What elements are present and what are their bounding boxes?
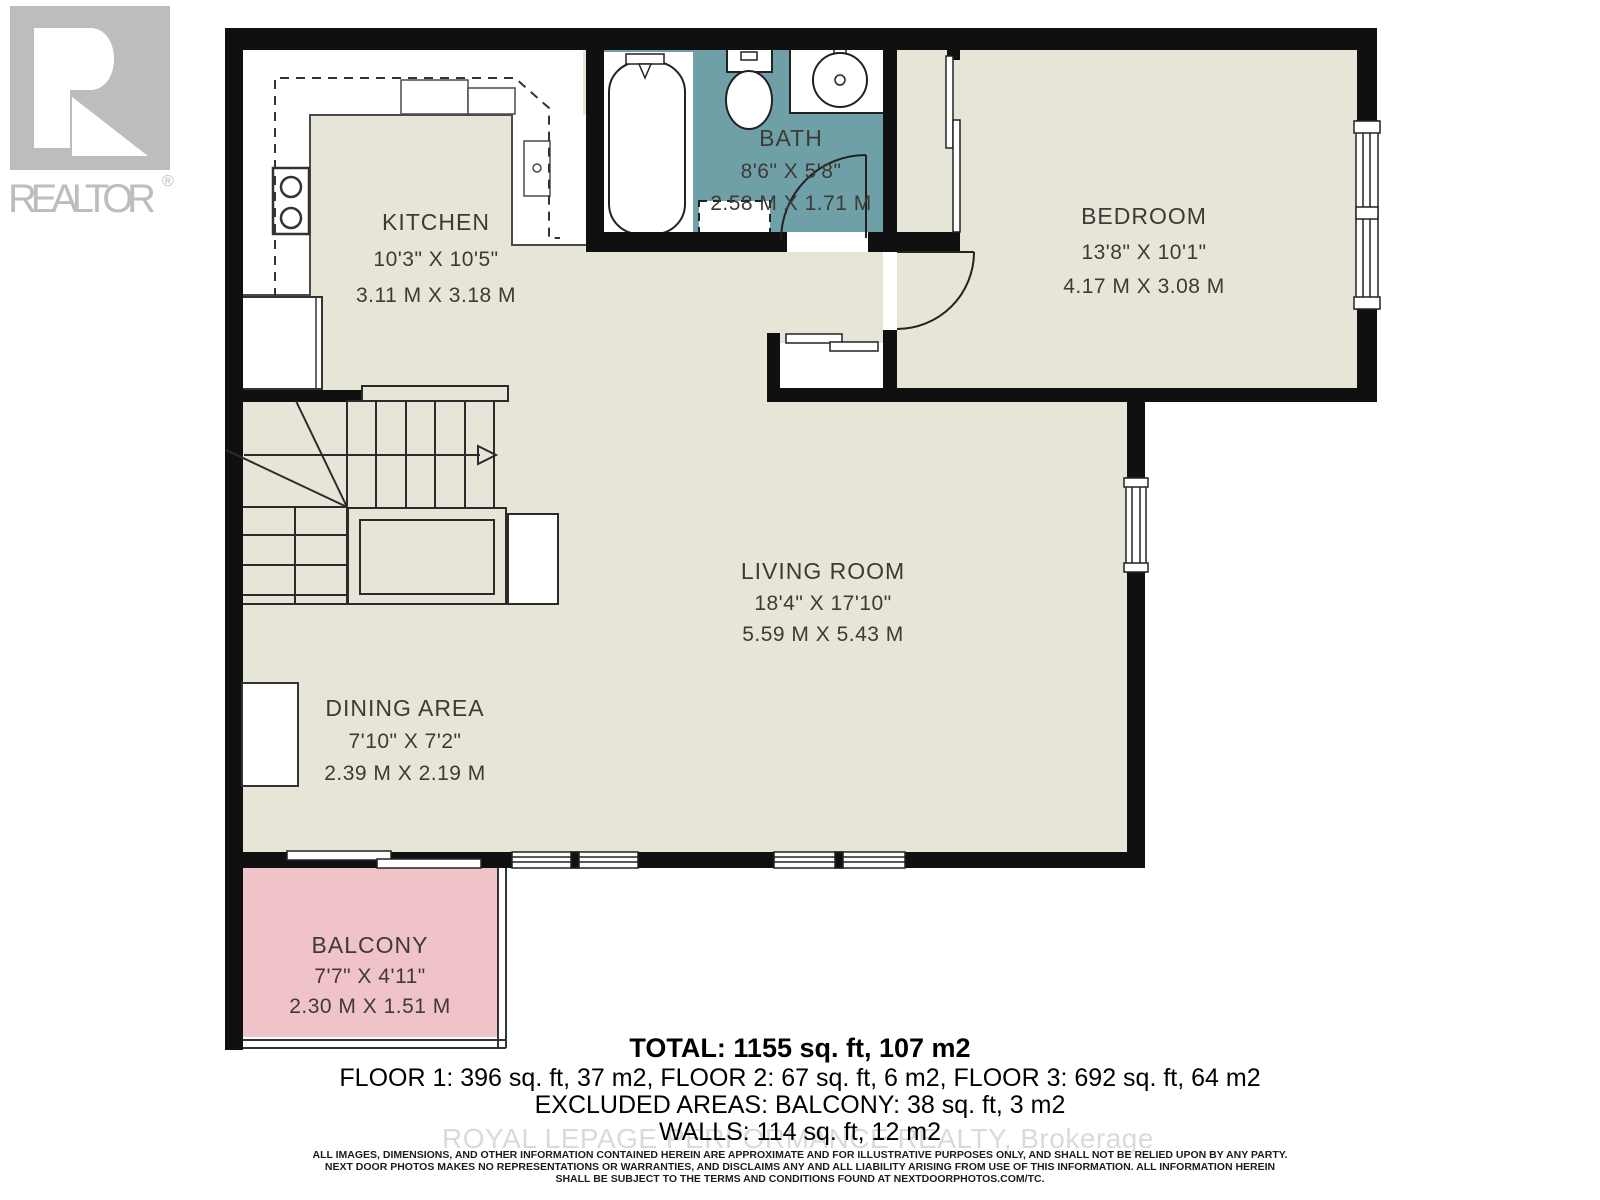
bedroom-metric: 4.17 M X 3.08 M [1063, 275, 1225, 298]
wall-bath-bottom-left [586, 232, 787, 252]
bathtub [609, 62, 685, 234]
bedroom-closet-slider-1 [946, 56, 953, 148]
realtor-logo-r-bowl [70, 28, 114, 90]
balcony-slider-panel-2 [377, 859, 481, 868]
bedroom-window-sill-bottom [1354, 297, 1380, 309]
bedroom-imperial: 13'8" X 10'1" [1081, 241, 1206, 264]
balcony-metric: 2.30 M X 1.51 M [289, 995, 451, 1018]
disclaimer: ALL IMAGES, DIMENSIONS, AND OTHER INFORM… [312, 1149, 1287, 1185]
living-room-label: LIVING ROOM 18'4" X 17'10" 5.59 M X 5.43… [741, 558, 905, 646]
living-window-sill-bottom [1124, 563, 1148, 572]
toilet-bowl [726, 71, 772, 129]
bath-imperial: 8'6" X 5'8" [741, 160, 842, 183]
wall-bath-bottom-right [868, 232, 960, 252]
bottom-window-2-mullion [835, 852, 843, 868]
balcony-slider-panel-1 [287, 851, 391, 860]
sink-basin [813, 53, 867, 107]
floor-plan-page: REALTOR ® [0, 0, 1600, 1200]
kitchen-imperial: 10'3" X 10'5" [373, 248, 498, 271]
realtor-logo: REALTOR ® [8, 6, 174, 221]
living-room-imperial: 18'4" X 17'10" [754, 592, 891, 615]
disclaimer-line-1: ALL IMAGES, DIMENSIONS, AND OTHER INFORM… [312, 1149, 1287, 1161]
kitchen-appliance-box-2 [468, 88, 515, 114]
bath-name: BATH [759, 125, 823, 151]
realtor-logo-r-bar [34, 28, 70, 148]
bedroom-closet-slider-2 [953, 120, 960, 232]
kitchen-appliance-box [401, 80, 468, 114]
dining-fixture [242, 683, 298, 786]
wall-closet-left [767, 333, 780, 390]
living-room-metric: 5.59 M X 5.43 M [742, 623, 904, 646]
summary-excluded: EXCLUDED AREAS: BALCONY: 38 sq. ft, 3 m2 [535, 1091, 1066, 1119]
bottom-window-1-mullion [571, 852, 579, 868]
balcony-name: BALCONY [312, 932, 429, 958]
disclaimer-line-2: NEXT DOOR PHOTOS MAKES NO REPRESENTATION… [325, 1161, 1275, 1173]
stair-header [362, 386, 508, 401]
living-window [1126, 478, 1146, 572]
wall-bath-right [883, 48, 897, 232]
stair-side-closet [508, 514, 558, 604]
realtor-logo-text: REALTOR [8, 177, 158, 221]
bedroom-name: BEDROOM [1081, 203, 1207, 229]
wall-living-right [1127, 390, 1145, 868]
bath-door-gap [787, 232, 868, 252]
stove-burner-1 [281, 177, 301, 197]
fridge [242, 297, 322, 389]
kitchen-sink [524, 141, 550, 196]
kitchen-name: KITCHEN [382, 209, 490, 235]
dining-area-metric: 2.39 M X 2.19 M [324, 762, 486, 785]
bedroom-window-sill-top [1354, 121, 1380, 133]
summary-floors: FLOOR 1: 396 sq. ft, 37 m2, FLOOR 2: 67 … [339, 1064, 1260, 1092]
tub-faucet [626, 54, 664, 64]
summary-total: TOTAL: 1155 sq. ft, 107 m2 [629, 1033, 970, 1063]
kitchen-metric: 3.11 M X 3.18 M [356, 284, 516, 307]
disclaimer-line-3: SHALL BE SUBJECT TO THE TERMS AND CONDIT… [555, 1173, 1044, 1185]
balcony-imperial: 7'7" X 4'11" [314, 965, 425, 988]
dining-area-name: DINING AREA [325, 695, 484, 721]
wall-kitchen-bottom [225, 390, 362, 402]
wall-below-door [883, 330, 897, 392]
dining-area-imperial: 7'10" X 7'2" [349, 730, 462, 753]
wall-top [225, 28, 1377, 50]
bath-metric: 2.58 M X 1.71 M [710, 192, 872, 215]
wall-left [225, 28, 243, 1050]
bedroom-door-gap [883, 252, 897, 330]
bedroom-window-mullion [1356, 207, 1378, 219]
toilet-flush-button [741, 52, 757, 60]
summary-walls: WALLS: 114 sq. ft, 12 m2 [659, 1118, 941, 1146]
registered-mark: ® [162, 173, 174, 190]
bedroom-label: BEDROOM 13'8" X 10'1" 4.17 M X 3.08 M [1063, 203, 1225, 298]
wall-bedroom-south [767, 388, 1377, 402]
wall-kitchen-bath-divider [586, 48, 604, 252]
stove-burner-2 [281, 208, 301, 228]
hall-closet-slider-2 [830, 342, 878, 351]
living-room-name: LIVING ROOM [741, 558, 905, 584]
living-window-sill-top [1124, 478, 1148, 487]
